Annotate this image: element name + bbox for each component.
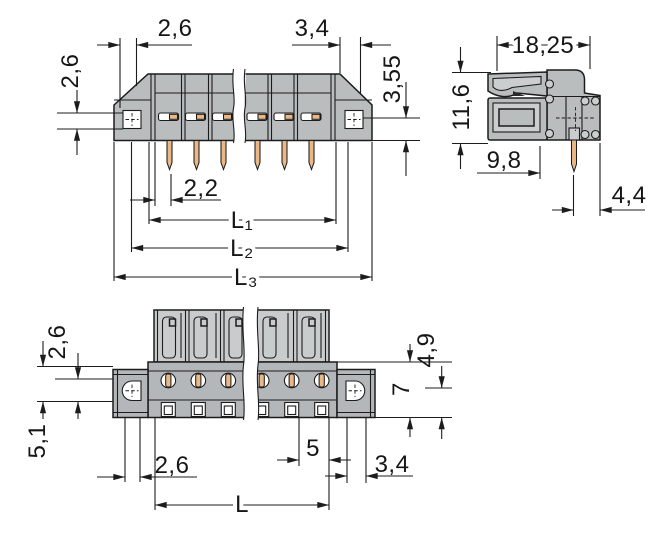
dim-label-bottom-left-lower: 5,1 xyxy=(24,424,51,459)
dim-label-front-top-right: 3,4 xyxy=(295,15,330,42)
dim-side-width: 18,25 xyxy=(497,32,590,71)
dim-label-bottom-total-height: 7 xyxy=(388,382,415,396)
dim-label-bottom-upper-height: 4,9 xyxy=(413,333,440,368)
dim-front-l2: L₂ xyxy=(132,142,349,262)
dim-label-l3: L₃ xyxy=(234,264,258,291)
drawing-canvas: 2,6 3,4 2,6 3,55 xyxy=(0,0,672,535)
dim-label-front-right: 3,55 xyxy=(379,55,406,104)
dim-front-left: 2,6 xyxy=(57,54,123,155)
dim-label-side-pin-edge: 4,4 xyxy=(612,182,647,209)
dim-label-bottom-left-upper: 2,6 xyxy=(44,325,71,360)
dim-front-pin-offset: 2,2 xyxy=(130,142,221,206)
bottom-right-flange xyxy=(337,370,375,418)
dim-bottom-slot-left: 2,6 xyxy=(97,418,197,483)
front-break-symbol xyxy=(233,69,246,143)
dim-label-bottom-length: L xyxy=(235,491,249,518)
side-view: 18,25 11,6 9,8 4,4 xyxy=(448,32,646,216)
dim-side-depth: 9,8 xyxy=(477,146,540,179)
dim-bottom-pitch: 5 xyxy=(277,418,351,511)
dim-label-side-height: 11,6 xyxy=(448,84,475,131)
dim-label-side-width: 18,25 xyxy=(512,32,575,59)
dim-label-bottom-slot-left: 2,6 xyxy=(155,452,190,479)
dim-side-height: 11,6 xyxy=(448,47,491,169)
side-solder-pin xyxy=(572,140,577,172)
dim-label-front-pin-offset: 2,2 xyxy=(184,175,219,202)
connector-dimension-drawing: 2,6 3,4 2,6 3,55 xyxy=(0,0,672,535)
dim-label-side-depth: 9,8 xyxy=(487,147,522,174)
dim-label-front-top-left: 2,6 xyxy=(158,15,193,42)
bottom-view: 2,6 5,1 2,6 5 3,4 xyxy=(24,307,452,518)
front-view: 2,6 3,4 2,6 3,55 xyxy=(57,15,420,291)
dim-label-l1: L₁ xyxy=(231,207,253,234)
bottom-housing xyxy=(154,310,329,362)
dim-label-bottom-slot-right: 3,4 xyxy=(375,451,410,478)
dim-side-pin-edge: 4,4 xyxy=(552,143,646,216)
dim-label-front-left: 2,6 xyxy=(57,54,84,89)
dim-bottom-left-upper: 2,6 5,1 xyxy=(24,325,113,459)
bottom-left-flange xyxy=(113,370,148,418)
dim-label-bottom-pitch: 5 xyxy=(306,435,320,462)
dim-bottom-slot-right: 3,4 xyxy=(325,418,413,484)
dim-front-l1: L₁ xyxy=(149,142,336,234)
bottom-break-symbol xyxy=(243,307,259,420)
front-solder-pins xyxy=(167,141,314,170)
dim-label-l2: L₂ xyxy=(230,235,254,262)
